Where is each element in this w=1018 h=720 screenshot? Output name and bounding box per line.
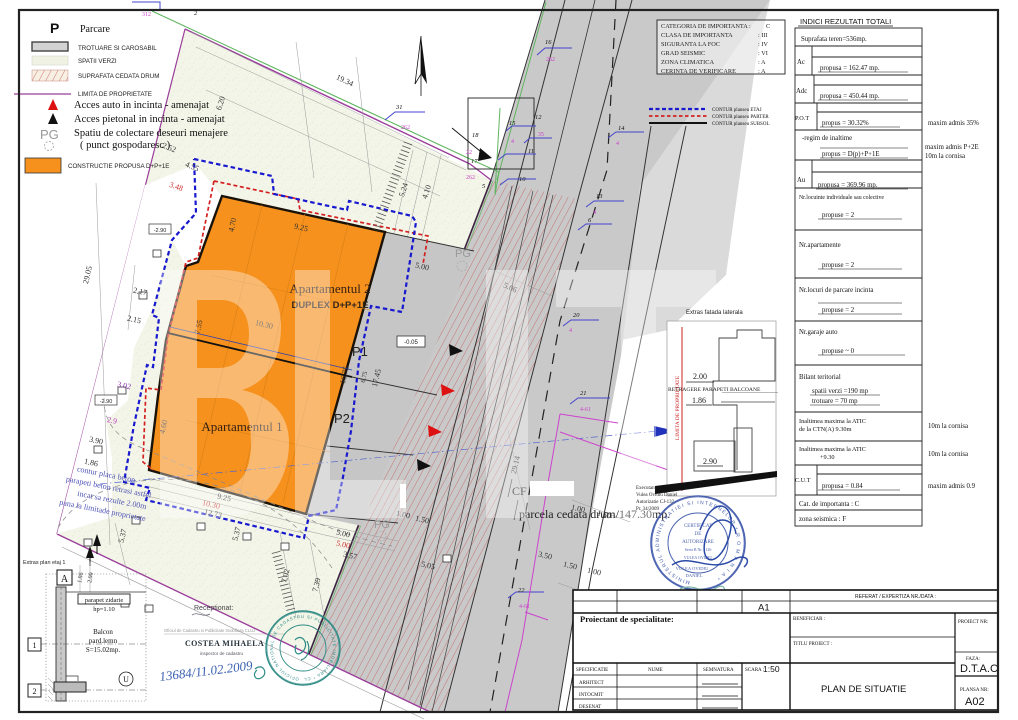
svg-text:propusa = 450.44 mp.: propusa = 450.44 mp. (820, 93, 880, 100)
svg-text:SUPRAFATA CEDATA DRUM: SUPRAFATA CEDATA DRUM (78, 73, 159, 80)
svg-text:4: 4 (616, 141, 619, 147)
svg-text:-2.90: -2.90 (100, 399, 113, 405)
svg-text:Seria B Nr. 1126: Seria B Nr. 1126 (685, 547, 712, 552)
svg-text:CERTIFICAT: CERTIFICAT (684, 524, 712, 529)
svg-text:1:50: 1:50 (763, 664, 780, 674)
svg-text:Nr.apartamente: Nr.apartamente (799, 242, 841, 249)
svg-text:14: 14 (618, 125, 625, 132)
svg-text:22: 22 (518, 587, 525, 594)
svg-text:C.U.T: C.U.T (795, 477, 811, 484)
svg-text:20: 20 (573, 312, 580, 319)
svg-text:4: 4 (593, 210, 596, 216)
svg-text:TITLU PROIECT :: TITLU PROIECT : (793, 642, 832, 647)
svg-text:PLAN DE SITUATIE: PLAN DE SITUATIE (821, 684, 906, 695)
svg-text:Bilant teritorial: Bilant teritorial (799, 374, 841, 381)
svg-text:CLASA DE IMPORTANTA: CLASA DE IMPORTANTA (661, 32, 733, 39)
svg-text:PG: PG (40, 127, 59, 142)
svg-text:PG: PG (455, 248, 471, 260)
svg-text:-0.05: -0.05 (404, 340, 418, 346)
svg-text:PG: PG (374, 519, 390, 531)
svg-text:LIMITA DE PROPRIETATE: LIMITA DE PROPRIETATE (78, 91, 152, 98)
svg-text:CATEGORIA DE IMPORTANTA :: CATEGORIA DE IMPORTANTA : (661, 23, 751, 30)
svg-text:ZONA CLIMATICA: ZONA CLIMATICA (661, 59, 714, 66)
svg-text:propusa = 162.47 mp.: propusa = 162.47 mp. (820, 65, 880, 72)
svg-text:13: 13 (596, 193, 603, 200)
svg-text:de la CTN(A) 9.30m: de la CTN(A) 9.30m (799, 426, 852, 433)
svg-text:18: 18 (472, 132, 479, 139)
svg-text:REFERAT / EXPERTIZA NR./DATA :: REFERAT / EXPERTIZA NR./DATA : (855, 594, 936, 600)
svg-text:16: 16 (545, 39, 552, 46)
svg-text:maxim admis 35%: maxim admis 35% (928, 120, 979, 127)
svg-text:CONTUR planseu ETAJ: CONTUR planseu ETAJ (712, 108, 762, 113)
svg-text:Cat. de importanta :: Cat. de importanta : C (799, 501, 860, 508)
svg-text:4: 4 (569, 328, 572, 334)
svg-text:Proiectant de specialitate:: Proiectant de specialitate: (580, 614, 674, 624)
svg-text:propus = 30.32%: propus = 30.32% (822, 120, 869, 127)
svg-text:11: 11 (528, 148, 534, 155)
svg-text:Adc: Adc (796, 88, 807, 95)
svg-text:BENEFICIAR :: BENEFICIAR : (793, 617, 825, 622)
svg-text:propusa = 0.84: propusa = 0.84 (822, 483, 863, 490)
svg-text:Spatiu de colectare deseuri me: Spatiu de colectare deseuri menajere (74, 128, 228, 139)
svg-text:10: 10 (519, 176, 526, 183)
svg-text:: A: : A (758, 68, 766, 75)
svg-text:( punct gospodaresc ): ( punct gospodaresc ) (80, 140, 171, 151)
svg-text:Executant:: Executant: (636, 486, 657, 491)
svg-text:4-61: 4-61 (519, 604, 530, 610)
svg-text:zona seismica :: zona seismica : F (799, 516, 846, 523)
svg-text:CONSTRUCTIE PROPUSA D+P+1E: CONSTRUCTIE PROPUSA D+P+1E (68, 163, 169, 170)
svg-text:SIGURANTA LA FOC: SIGURANTA LA FOC (661, 41, 720, 48)
svg-text:2.00: 2.00 (693, 372, 707, 381)
svg-text:15: 15 (509, 120, 516, 127)
svg-text:maxim admis P+2E: maxim admis P+2E (925, 144, 979, 151)
svg-text:ARHITECT: ARHITECT (579, 681, 604, 686)
svg-text:VULEA OVIDIU: VULEA OVIDIU (676, 566, 709, 571)
svg-text:10m la cornisa: 10m la cornisa (925, 153, 965, 160)
svg-text:hp=1.10: hp=1.10 (93, 606, 115, 613)
svg-text:DE: DE (695, 532, 702, 537)
svg-text:262: 262 (546, 57, 555, 63)
svg-text:262: 262 (401, 125, 410, 131)
svg-text:P1: P1 (352, 344, 368, 359)
svg-text:Extras plan etaj 1: Extras plan etaj 1 (23, 560, 66, 566)
svg-text:: IV: : IV (758, 41, 768, 48)
svg-text:COSTEA MIHAELA: COSTEA MIHAELA (185, 639, 264, 648)
svg-text:Vulea Ovidiu Daniel: Vulea Ovidiu Daniel (636, 493, 678, 498)
svg-text:SPATII VERZI: SPATII VERZI (78, 58, 117, 65)
svg-text:Inaltimea maxima la ATIC: Inaltimea maxima la ATIC (799, 446, 866, 453)
svg-text:1: 1 (33, 641, 37, 650)
svg-text:22: 22 (466, 150, 472, 156)
svg-text:P2: P2 (334, 411, 350, 426)
svg-text:Nr.locuinte individuale sau: Nr.locuinte individuale sau colective (799, 195, 884, 201)
svg-text:17: 17 (471, 158, 478, 165)
svg-text:TROTUARE SI CAROSABIL: TROTUARE SI CAROSABIL (78, 45, 157, 52)
svg-text:Ac: Ac (797, 59, 805, 66)
svg-text:CONTUR planseu SUBSOL: CONTUR planseu SUBSOL (712, 122, 770, 127)
svg-text:CONTUR planseu PARTER: CONTUR planseu PARTER (712, 115, 769, 120)
svg-text:DANIEL: DANIEL (685, 573, 702, 578)
svg-text:PLANSA NR:: PLANSA NR: (960, 688, 989, 693)
svg-text:propuse ~ 0: propuse ~ 0 (822, 348, 855, 355)
svg-text:C: C (766, 23, 770, 30)
svg-text:maxim admis 0.9: maxim admis 0.9 (928, 483, 976, 490)
svg-text:A1: A1 (758, 603, 770, 614)
svg-text:PROIECT NR:: PROIECT NR: (958, 620, 988, 625)
svg-text:1.86: 1.86 (692, 396, 706, 405)
svg-text:U: U (123, 675, 129, 684)
svg-text:FAZA:: FAZA: (966, 657, 980, 662)
svg-text:CERINTA DE VERIFICARE: CERINTA DE VERIFICARE (661, 68, 736, 75)
svg-text:Inaltimea maxima la ATIC: Inaltimea maxima la ATIC (799, 418, 866, 425)
svg-text:propuse = 2: propuse = 2 (822, 212, 855, 219)
svg-text:SPECIFICATIE: SPECIFICATIE (576, 668, 608, 673)
svg-text:Balcon: Balcon (93, 628, 113, 636)
svg-text:DESENAT: DESENAT (579, 705, 601, 710)
svg-text:GRAD SEISMIC: GRAD SEISMIC (661, 50, 705, 57)
svg-text:12: 12 (535, 114, 542, 121)
svg-text:Pr. 34/2009: Pr. 34/2009 (636, 507, 660, 512)
svg-text:propuse = 2: propuse = 2 (822, 307, 855, 314)
svg-text:: A: : A (758, 59, 766, 66)
svg-text:Extras fatada laterala: Extras fatada laterala (686, 310, 743, 316)
svg-text:propuse = 2: propuse = 2 (822, 262, 855, 269)
svg-text:Acces auto in incinta - amenaj: Acces auto in incinta - amenajat (74, 100, 209, 111)
svg-text:spatii verzi =190 mp: spatii verzi =190 mp (812, 388, 869, 395)
svg-text:D.T.A.C: D.T.A.C (960, 663, 998, 675)
svg-text:P.O.T: P.O.T (795, 115, 809, 122)
svg-text:Au: Au (797, 177, 806, 184)
svg-text:Autorizatie CJ-132: Autorizatie CJ-132 (636, 500, 675, 505)
svg-text:10m la cornisa: 10m la cornisa (928, 451, 968, 458)
svg-text:+9.30: +9.30 (820, 454, 835, 461)
svg-text:-2.90: -2.90 (154, 228, 167, 234)
svg-text:10m la cornisa: 10m la cornisa (928, 423, 968, 430)
svg-text:INTOCMIT: INTOCMIT (579, 693, 603, 698)
svg-text:-regim de inaltime: -regim de inaltime (802, 135, 852, 142)
svg-text:trotuare = 70 mp: trotuare = 70 mp (812, 398, 858, 405)
svg-text:SCARA :: SCARA : (745, 668, 764, 673)
svg-text:21: 21 (580, 390, 587, 397)
svg-text:2.90: 2.90 (703, 457, 717, 466)
svg-text:4: 4 (511, 139, 514, 145)
svg-text:2: 2 (33, 687, 37, 696)
svg-text:262: 262 (466, 175, 475, 181)
svg-text:propus = D(p)+P+1E: propus = D(p)+P+1E (822, 151, 880, 158)
svg-text:Parcare: Parcare (80, 24, 111, 35)
svg-text:Nr.locuri de parcare incint: Nr.locuri de parcare incinta (799, 287, 873, 294)
svg-text:35: 35 (538, 132, 544, 138)
svg-text:inspector de cadastru: inspector de cadastru (200, 651, 244, 656)
svg-text:S=15.02mp.: S=15.02mp. (86, 646, 121, 654)
svg-text:NUME: NUME (648, 668, 663, 673)
svg-text:31: 31 (395, 104, 403, 111)
svg-text:INDICI REZULTATI TOTALI: INDICI REZULTATI TOTALI (800, 17, 891, 26)
svg-text:P: P (50, 20, 59, 36)
svg-text:: III: : III (758, 32, 768, 39)
svg-text:Receptionat:: Receptionat: (194, 605, 233, 612)
svg-text:312: 312 (142, 12, 151, 18)
svg-text:RETRAGERE PARAPETI BALCOANE: RETRAGERE PARAPETI BALCOANE (668, 387, 761, 393)
svg-text:AUTORIZARE: AUTORIZARE (682, 540, 714, 545)
svg-text:4-61: 4-61 (580, 407, 591, 413)
svg-text:parapet zidarie: parapet zidarie (85, 597, 124, 604)
svg-text:SEMNATURA: SEMNATURA (703, 668, 734, 673)
svg-text:Oficiul de Cadastru si Publici: Oficiul de Cadastru si Publicitate Imobi… (164, 628, 255, 633)
svg-text:Acces pietonal in incinta - am: Acces pietonal in incinta - amenajat (74, 114, 225, 125)
svg-text:LIMITA DE PROPRIETATE: LIMITA DE PROPRIETATE (675, 375, 681, 440)
svg-text:A02: A02 (965, 696, 985, 708)
svg-text:Suprafata teren=536mp.: Suprafata teren=536mp. (801, 36, 867, 43)
svg-text:Nr.garaje auto: Nr.garaje auto (799, 329, 838, 336)
svg-text:propusa = 369.96 mp.: propusa = 369.96 mp. (818, 182, 878, 189)
svg-text:A: A (61, 574, 69, 585)
svg-text:: VI: : VI (758, 50, 768, 57)
